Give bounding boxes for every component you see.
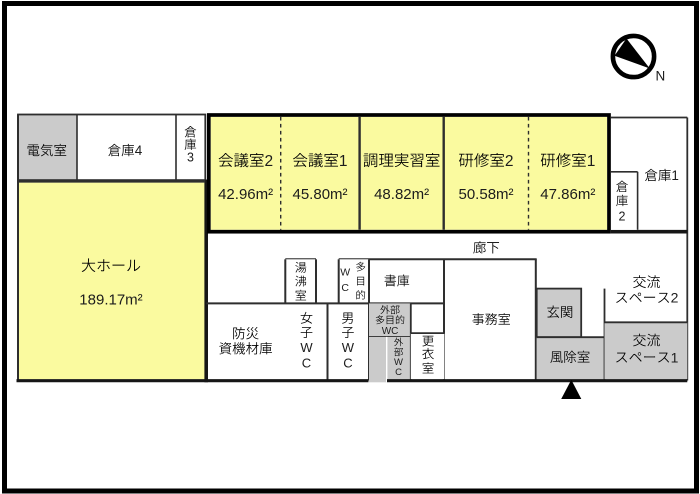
svg-text:C: C bbox=[343, 356, 352, 371]
svg-text:C: C bbox=[302, 356, 311, 371]
svg-text:W: W bbox=[342, 340, 355, 355]
svg-text:N: N bbox=[656, 69, 666, 84]
svg-text:2: 2 bbox=[619, 210, 626, 224]
svg-text:C: C bbox=[395, 367, 402, 378]
svg-text:W: W bbox=[340, 267, 350, 279]
svg-text:45.80m²: 45.80m² bbox=[293, 186, 348, 203]
svg-text:3: 3 bbox=[187, 151, 194, 165]
svg-text:2: 2 bbox=[671, 290, 679, 306]
svg-text:1: 1 bbox=[671, 168, 679, 183]
svg-text:4: 4 bbox=[135, 143, 143, 158]
svg-text:48.82m²: 48.82m² bbox=[374, 186, 429, 203]
svg-text:C: C bbox=[341, 282, 349, 294]
svg-text:189.17m²: 189.17m² bbox=[79, 291, 142, 308]
svg-text:47.86m²: 47.86m² bbox=[540, 186, 595, 203]
svg-text:W: W bbox=[300, 340, 313, 355]
svg-text:42.96m²: 42.96m² bbox=[218, 186, 273, 203]
svg-text:1: 1 bbox=[339, 153, 348, 170]
svg-text:2: 2 bbox=[505, 153, 514, 170]
svg-text:1: 1 bbox=[671, 349, 679, 365]
svg-text:WC: WC bbox=[382, 326, 399, 337]
svg-text:50.58m²: 50.58m² bbox=[459, 186, 514, 203]
svg-text:2: 2 bbox=[265, 153, 274, 170]
svg-text:1: 1 bbox=[587, 153, 596, 170]
